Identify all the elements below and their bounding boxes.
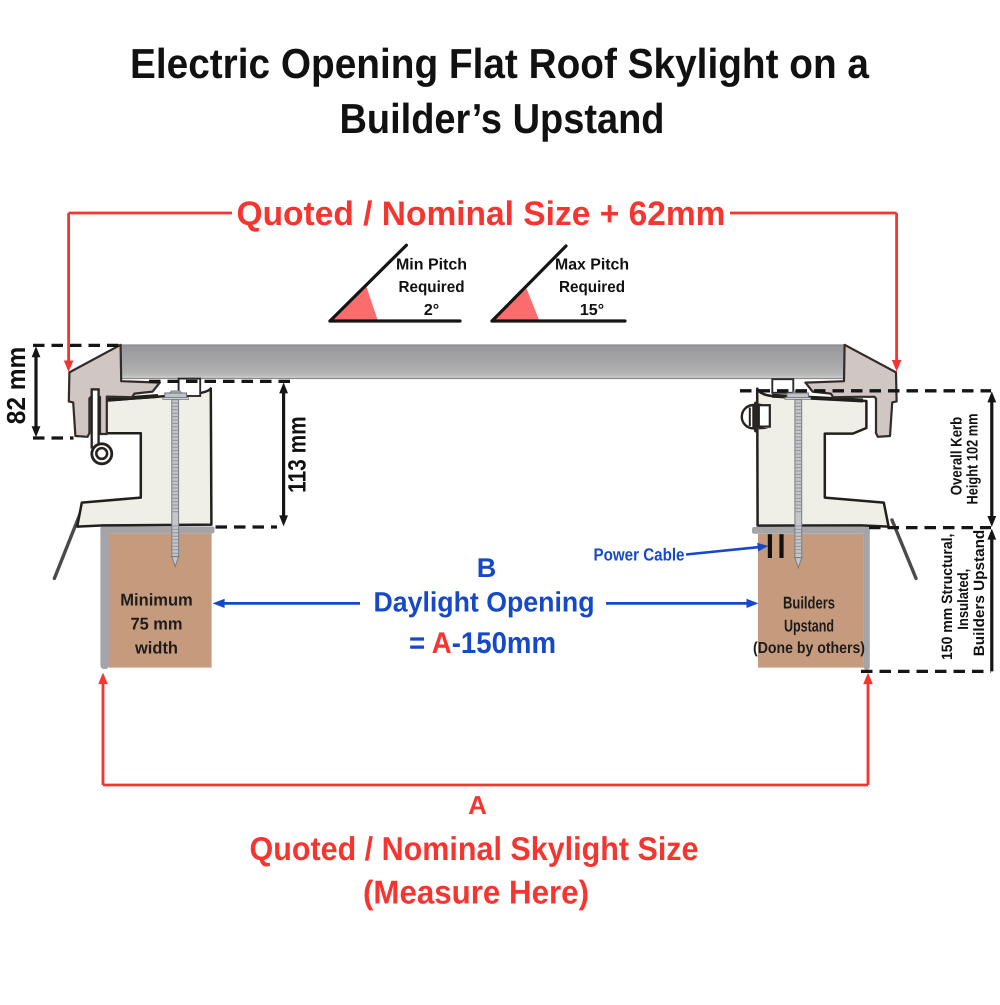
- svg-text:Electric Opening Flat Roof Sky: Electric Opening Flat Roof Skylight on a: [130, 40, 870, 87]
- svg-text:Daylight Opening: Daylight Opening: [374, 587, 595, 618]
- svg-text:Builder’s Upstand: Builder’s Upstand: [340, 95, 665, 142]
- svg-text:B: B: [477, 553, 497, 583]
- svg-text:75 mm: 75 mm: [131, 615, 183, 634]
- svg-text:Quoted / Nominal Skylight Size: Quoted / Nominal Skylight Size: [250, 830, 699, 867]
- svg-text:Builders Upstand: Builders Upstand: [971, 530, 988, 657]
- svg-text:Min Pitch: Min Pitch: [396, 257, 467, 274]
- svg-text:Height 102 mm: Height 102 mm: [964, 414, 981, 505]
- svg-text:Max Pitch: Max Pitch: [555, 257, 629, 274]
- svg-text:Insulated,: Insulated,: [955, 569, 972, 630]
- svg-text:Required: Required: [559, 279, 625, 296]
- svg-text:Overall Kerb: Overall Kerb: [948, 417, 965, 496]
- svg-text:113 mm: 113 mm: [284, 416, 312, 493]
- svg-text:2°: 2°: [424, 302, 439, 319]
- svg-text:Quoted / Nominal Size + 62mm: Quoted / Nominal Size + 62mm: [237, 195, 726, 233]
- svg-text:150 mm Structural,: 150 mm Structural,: [939, 534, 956, 661]
- svg-text:Power Cable: Power Cable: [594, 545, 685, 565]
- svg-text:(Measure Here): (Measure Here): [363, 874, 589, 911]
- svg-text:15°: 15°: [580, 302, 604, 319]
- svg-text:Upstand: Upstand: [784, 617, 834, 636]
- svg-text:Minimum: Minimum: [120, 591, 193, 610]
- svg-text:(Done by others): (Done by others): [753, 640, 865, 657]
- svg-text:Required: Required: [399, 279, 465, 296]
- svg-text:A: A: [468, 790, 487, 820]
- svg-text:Builders: Builders: [783, 594, 835, 613]
- svg-text:= A-150mm: = A-150mm: [409, 627, 556, 660]
- svg-text:width: width: [134, 639, 178, 658]
- svg-text:82 mm: 82 mm: [1, 347, 31, 425]
